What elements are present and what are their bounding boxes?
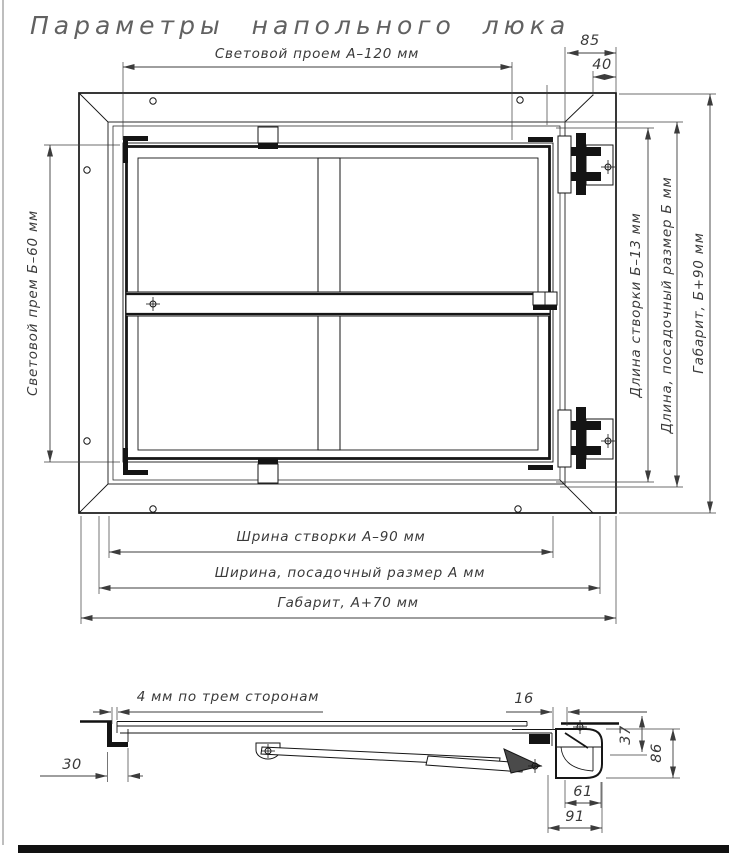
dim-61: 61 [573, 784, 592, 800]
dim-seat-width: Ширина, посадочный размер А мм [215, 565, 485, 581]
page-title: Параметры напольного люка [30, 11, 570, 40]
latch-top [258, 127, 278, 149]
hinge-top [558, 133, 615, 195]
hinge-arm [565, 733, 588, 748]
dim-opening-width: Световой проем А–120 мм [215, 46, 419, 62]
dim-37: 37 [618, 725, 634, 745]
bottom-band [18, 845, 729, 853]
dim-opening-height: Световой прем Б–60 мм [25, 210, 41, 396]
dim-overall-width: Габарит, А+70 мм [277, 595, 418, 611]
dim-leaf-width: Шрина створки А–90 мм [236, 529, 425, 545]
lid-stiffener-bottom [318, 316, 340, 450]
hinge-box-section [556, 720, 602, 778]
lid-lock [533, 292, 557, 310]
dim-40: 40 [592, 57, 611, 73]
dim-30: 30 [62, 757, 81, 773]
section-view [80, 720, 619, 778]
dim-91: 91 [565, 809, 584, 825]
dim-16: 16 [514, 691, 533, 707]
plan-view [79, 47, 616, 513]
lid-stiffener-top [318, 158, 340, 292]
lid-cross-bar [126, 292, 550, 316]
hinge-bottom [558, 407, 615, 469]
dim-86: 86 [649, 743, 665, 762]
lid-section [117, 722, 552, 747]
lid-end-stiffener [529, 734, 550, 744]
gas-strut [256, 743, 542, 773]
section-dimensions: 4 мм по трем сторонам 30 16 37 86 61 [40, 689, 680, 833]
dim-gap-note: 4 мм по трем сторонам [137, 689, 320, 705]
hatch-lid [123, 127, 557, 483]
dim-85: 85 [580, 33, 599, 49]
hatch-technical-drawing: Параметры напольного люка [0, 0, 729, 853]
latch-bottom [258, 458, 278, 483]
drawing-sheet: Параметры напольного люка [0, 0, 729, 853]
dim-seat-length: Длина, посадочный размер Б мм [659, 176, 675, 434]
dim-leaf-length: Длина створки Б–13 мм [628, 212, 644, 398]
dim-overall-length: Габарит, Б+90 мм [691, 232, 707, 373]
